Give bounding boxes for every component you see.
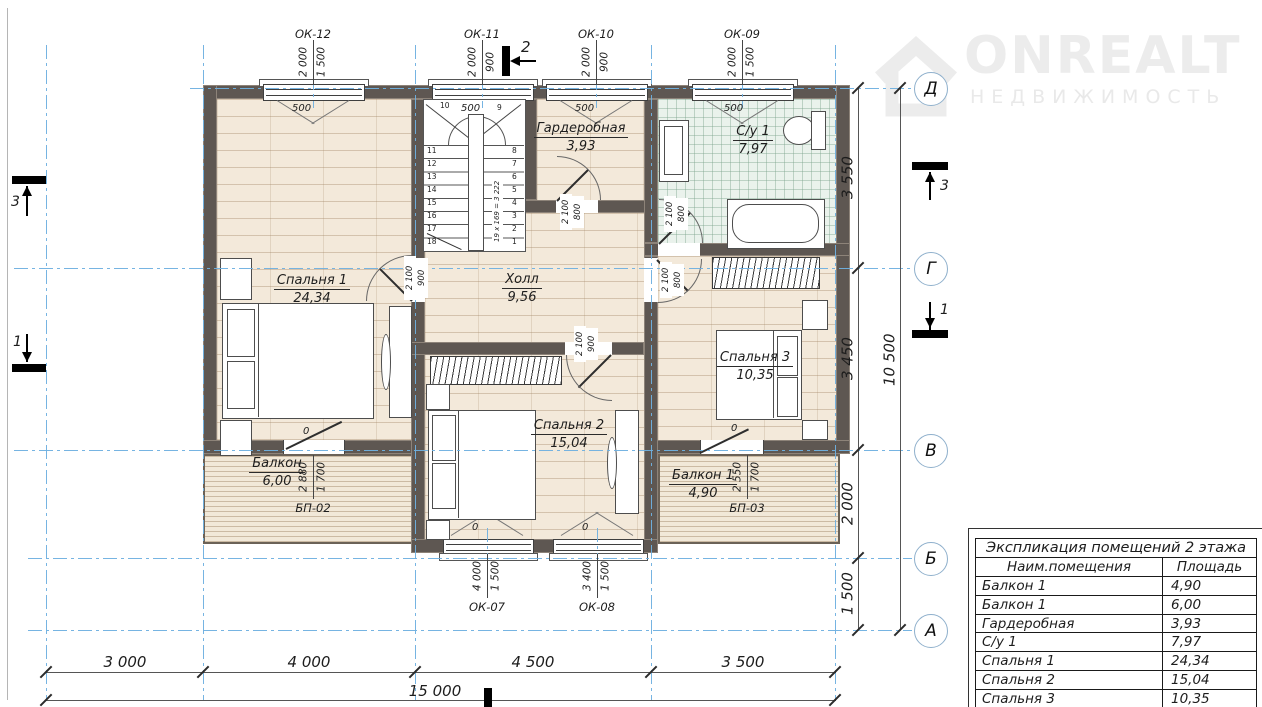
window-callout-ok12: ОК-12 <box>283 27 343 41</box>
stair-step-number: 14 <box>427 185 437 194</box>
table-cell-name: Гардеробная <box>976 616 1162 632</box>
dim-bottom-3: 3 500 <box>693 653 793 671</box>
table-cell-name: Балкон 1 <box>976 578 1162 594</box>
axis-letter: Г <box>926 259 935 279</box>
nightstand <box>426 520 450 540</box>
axis-circle-b: Б <box>914 542 948 576</box>
room-area: 10,35 <box>700 367 810 383</box>
window-dim: 4 000 <box>471 555 484 597</box>
table-title: Экспликация помещений 2 этажа <box>986 540 1246 556</box>
table-cell-area: 4,90 <box>1162 577 1256 595</box>
room-area: 7,97 <box>698 141 808 157</box>
callout-leader <box>597 554 598 598</box>
room-label-bathroom: С/у 1 7,97 <box>698 124 808 157</box>
stair-step-number: 17 <box>427 224 437 233</box>
section-marker-3-right-label: 3 <box>940 178 949 194</box>
callout-leader <box>313 40 314 85</box>
toilet-tank <box>811 111 826 150</box>
sill-label: 500 <box>724 103 743 114</box>
table-title-row: Экспликация помещений 2 этажа <box>976 539 1256 557</box>
table-cell-area: 24,34 <box>1162 652 1256 670</box>
axis-line-col4 <box>651 45 652 700</box>
stair-step-number: 8 <box>512 146 517 155</box>
window-dim: 1 500 <box>599 555 612 597</box>
table-cell-area: 10,35 <box>1162 690 1256 707</box>
section-marker-2-top-arrowhead <box>510 56 520 66</box>
table-cell-area: 3,93 <box>1162 615 1256 633</box>
threshold-label: 0 <box>731 423 737 434</box>
callout-leader <box>487 554 488 598</box>
room-label-bedroom1: Спальня 1 24,34 <box>257 273 367 306</box>
nightstand <box>220 258 252 300</box>
stair-step-number: 2 <box>512 224 517 233</box>
axis-line-col2 <box>203 45 204 700</box>
door-dim: 900 <box>416 258 428 298</box>
table-cell-name: Спальня 3 <box>976 691 1162 707</box>
axis-line-a <box>28 630 912 631</box>
table-cell-area: 15,04 <box>1162 671 1256 689</box>
stair-step-number: 4 <box>512 198 517 207</box>
door-dim: 800 <box>676 198 688 230</box>
table-header-name: Наим.помещения <box>976 559 1162 575</box>
logo-house-icon <box>864 20 968 124</box>
window-ok12 <box>263 84 365 101</box>
section-marker-1-left-label: 1 <box>13 334 22 350</box>
dim-bottom-1: 4 000 <box>259 653 359 671</box>
dim-line-right <box>858 88 859 630</box>
room-name: Спальня 1 <box>274 273 350 290</box>
bathtub-inner <box>732 204 819 243</box>
window-dim: 1 500 <box>744 41 757 83</box>
floor-plan-sheet: ONREALT НЕДВИЖИМОСТЬ <box>0 0 1262 707</box>
balcony-door-dim: 1 700 <box>315 456 328 498</box>
axis-line-d <box>190 88 912 89</box>
nightstand <box>802 300 828 330</box>
room-area: 24,34 <box>257 290 367 306</box>
window-callout-ok11: ОК-11 <box>452 27 512 41</box>
table-row: Спальня 3 10,35 <box>976 689 1256 707</box>
axis-line-col1 <box>46 45 47 700</box>
table-row: Спальня 2 15,04 <box>976 670 1256 689</box>
threshold-label: 0 <box>582 522 588 533</box>
balcony-door-callout-bp02: БП-02 <box>283 501 343 515</box>
sink-basin <box>664 126 683 175</box>
axis-letter: Д <box>924 79 937 99</box>
sill-label: 500 <box>461 103 480 114</box>
window-dim: 2 000 <box>466 41 479 83</box>
window-callout-ok10: ОК-10 <box>566 27 626 41</box>
door-dim: 2 100 <box>404 256 416 300</box>
room-name: Гардеробная <box>534 121 629 138</box>
room-name: С/у 1 <box>733 124 773 141</box>
axis-line-v <box>14 450 912 451</box>
pillow <box>227 309 255 357</box>
window-callout-ok09: ОК-09 <box>712 27 772 41</box>
table-row: Балкон 1 6,00 <box>976 595 1256 614</box>
stairs-note: 19 x 169 = 3 222 <box>492 175 503 247</box>
door-dim: 800 <box>672 264 684 296</box>
room-area: 9,56 <box>467 289 577 305</box>
axis-circle-a: А <box>914 614 948 648</box>
stair-step-number: 5 <box>512 185 517 194</box>
logo-subtitle: НЕДВИЖИМОСТЬ <box>970 86 1226 108</box>
callout-leader <box>482 40 483 85</box>
table-cell-name: Спальня 2 <box>976 672 1162 688</box>
section-marker-1-right-bar <box>912 330 948 338</box>
pillow <box>432 463 456 509</box>
dim-right-1: 3 450 <box>840 319 856 399</box>
stair-step-number: 6 <box>512 172 517 181</box>
section-marker-1-right-arrowhead <box>925 318 935 328</box>
axis-line-g <box>14 268 912 269</box>
door-dim: 2 100 <box>560 194 572 230</box>
stair-step-number: 3 <box>512 211 517 220</box>
dim-line-bottom <box>46 672 836 673</box>
bed-line <box>258 303 259 417</box>
axis-circle-g: Г <box>914 252 948 286</box>
axis-line-col3 <box>415 45 416 700</box>
pillow <box>777 377 798 417</box>
axis-line-col5 <box>835 45 836 700</box>
stair-step-number: 12 <box>427 159 437 168</box>
room-area: 3,93 <box>526 138 636 154</box>
stair-step-number: 13 <box>427 172 437 181</box>
window-dim: 2 000 <box>297 41 310 83</box>
door-dim: 2 100 <box>664 196 676 232</box>
stair-step-number: 16 <box>427 211 437 220</box>
balcony-door-dim: 2 550 <box>731 456 744 498</box>
sill-label: 500 <box>292 103 311 114</box>
section-marker-1-left-bar <box>12 364 46 372</box>
window-dim: 2 000 <box>580 41 593 83</box>
section-marker-1-left-arrowhead <box>22 352 32 362</box>
table-frame-line-v <box>968 528 969 707</box>
section-marker-3-right-bar <box>912 162 948 170</box>
table-row: Гардеробная 3,93 <box>976 614 1256 633</box>
room-name: Балкон 1 <box>669 468 737 485</box>
nightstand <box>426 384 450 410</box>
window-dim: 1 500 <box>315 41 328 83</box>
dim-line-right-total <box>900 88 901 630</box>
room-schedule-table: Экспликация помещений 2 этажа Наим.помещ… <box>975 538 1257 707</box>
dresser-bedroom1 <box>389 306 412 418</box>
dim-right-2: 2 000 <box>840 464 856 544</box>
window-dim: 2 000 <box>726 41 739 83</box>
frame-left-line <box>7 8 8 700</box>
section-marker-3-left-label: 3 <box>11 194 20 210</box>
room-label-bedroom3: Спальня 3 10,35 <box>700 350 810 383</box>
axis-letter: Б <box>925 549 937 569</box>
callout-leader <box>596 40 597 85</box>
balcony-door-dim: 2 880 <box>297 456 310 498</box>
axis-letter: А <box>925 621 937 641</box>
window-dim: 3 400 <box>581 555 594 597</box>
section-marker-3-left-arrowhead <box>22 186 32 196</box>
door-dim: 2 100 <box>574 326 586 362</box>
room-area: 15,04 <box>514 435 624 451</box>
tv-lens <box>381 334 391 390</box>
table-cell-name: С/у 1 <box>976 634 1162 650</box>
dim-right-3: 1 500 <box>840 554 856 634</box>
axis-line-b <box>28 558 912 559</box>
window-ok09 <box>692 84 794 101</box>
table-frame-line-h <box>968 528 1262 529</box>
room-name: Холл <box>502 272 541 289</box>
table-cell-area: 7,97 <box>1162 633 1256 651</box>
stair-step-number: 11 <box>427 146 437 155</box>
axis-letter: В <box>925 441 937 461</box>
threshold-label: 0 <box>303 426 309 437</box>
section-marker-2-bottom-bar <box>484 688 492 707</box>
stair-step-number: 15 <box>427 198 437 207</box>
logo: ONREALT НЕДВИЖИМОСТЬ <box>860 18 1240 118</box>
sill-label: 500 <box>575 103 594 114</box>
stairs-center-rail <box>468 114 484 251</box>
closet-hatch-bedroom3 <box>712 257 820 289</box>
table-cell-area: 6,00 <box>1162 596 1256 614</box>
balcony-door-dim: 1 700 <box>749 456 762 498</box>
dim-line-bottom-total <box>46 700 836 701</box>
table-cell-name: Спальня 1 <box>976 653 1162 669</box>
window-ok10 <box>546 84 648 101</box>
dim-bottom-2: 4 500 <box>483 653 583 671</box>
window-dim: 900 <box>484 41 497 83</box>
door-dim: 800 <box>572 196 584 228</box>
stair-step-number: 9 <box>497 103 502 112</box>
section-marker-3-left-bar <box>12 176 46 184</box>
room-label-bedroom2: Спальня 2 15,04 <box>514 418 624 451</box>
callout-leader <box>747 455 748 499</box>
stair-step-number: 18 <box>427 237 437 246</box>
balcony-door-callout-bp03: БП-03 <box>717 501 777 515</box>
wall-left <box>203 85 217 454</box>
door-dim: 2 100 <box>660 262 672 298</box>
room-label-wardrobe: Гардеробная 3,93 <box>526 121 636 154</box>
table-cell-name: Балкон 1 <box>976 597 1162 613</box>
section-marker-1-right-label: 1 <box>940 302 949 318</box>
pillow <box>432 415 456 461</box>
dim-bottom-total: 15 000 <box>380 682 490 700</box>
table-row: Балкон 1 4,90 <box>976 576 1256 595</box>
room-name: Спальня 3 <box>717 350 793 367</box>
room-label-hall: Холл 9,56 <box>467 272 577 305</box>
callout-leader <box>313 455 314 499</box>
dim-bottom-0: 3 000 <box>75 653 175 671</box>
window-dim: 900 <box>598 41 611 83</box>
stair-step-number: 7 <box>512 159 517 168</box>
dim-right-0: 3 550 <box>840 138 856 218</box>
pillow <box>227 361 255 409</box>
stair-step-number: 1 <box>512 237 517 246</box>
logo-brand: ONREALT <box>964 26 1242 86</box>
door-dim: 900 <box>586 328 598 360</box>
window-dim: 1 500 <box>489 555 502 597</box>
axis-circle-d: Д <box>914 72 948 106</box>
closet-hatch-bedroom2 <box>430 356 562 385</box>
threshold-label: 0 <box>472 522 478 533</box>
table-row: С/у 1 7,97 <box>976 632 1256 651</box>
nightstand <box>802 420 828 440</box>
section-marker-3-right-arrowhead <box>925 172 935 182</box>
section-marker-2-top-bar <box>502 46 510 76</box>
door-bathroom-opening <box>658 243 700 256</box>
bed-line <box>458 410 459 518</box>
axis-circle-v: В <box>914 434 948 468</box>
room-name: Спальня 2 <box>531 418 607 435</box>
stair-step-number: 10 <box>440 101 450 110</box>
table-header-area: Площадь <box>1162 558 1256 576</box>
callout-leader <box>742 40 743 85</box>
table-row: Спальня 1 24,34 <box>976 651 1256 670</box>
table-header-row: Наим.помещения Площадь <box>976 557 1256 576</box>
section-marker-2-top-label: 2 <box>521 38 531 56</box>
window-callout-ok08: ОК-08 <box>567 600 627 614</box>
dim-right-total: 10 500 <box>882 317 898 402</box>
window-callout-ok07: ОК-07 <box>457 600 517 614</box>
